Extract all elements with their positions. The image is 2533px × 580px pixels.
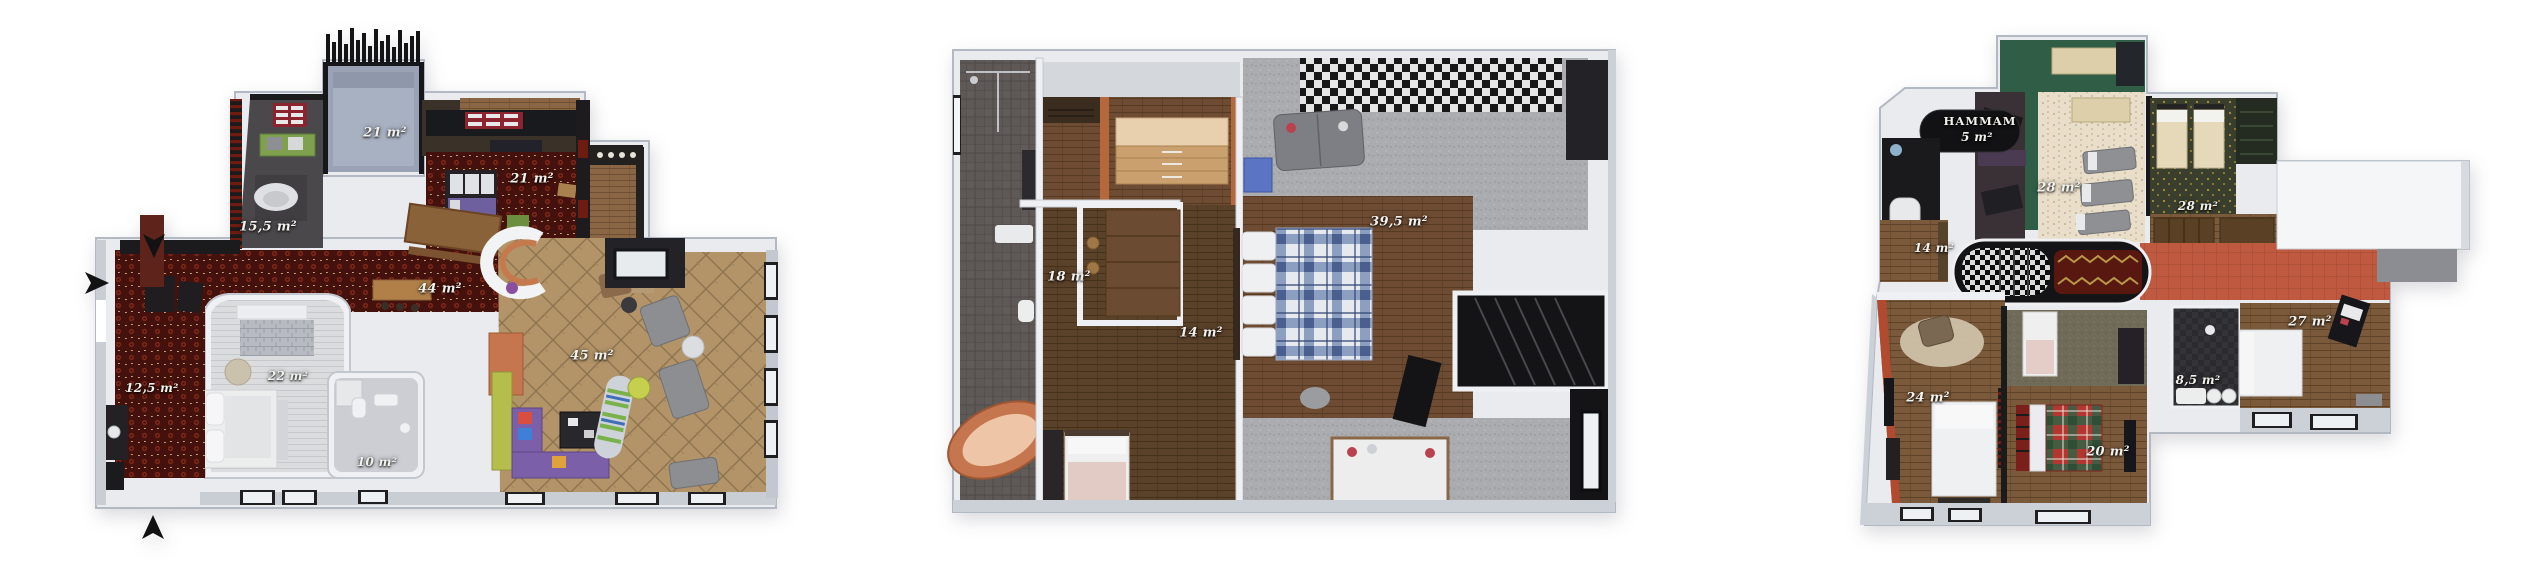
floor-plans-strip: 21 m² 21 m² 15,5 m² 44 m² 45 m² 22 m² 12…	[0, 0, 2533, 580]
right-floor-plan-render	[1820, 0, 2533, 580]
middle-floor-plan: 39,5 m² 18 m² 14 m²	[930, 0, 1650, 580]
room-bedroom-20	[2001, 306, 2147, 503]
room-green-top	[2000, 40, 2145, 92]
room-closet	[1043, 97, 1100, 200]
room-corridor-14	[1020, 200, 1236, 503]
right-floor-plan: HAMMAM 5 m² 28 m² 28 m² 14 m² 27 m² 8,5 …	[1820, 0, 2533, 580]
room-corridor-14	[1880, 220, 1948, 282]
wall	[1036, 58, 1043, 502]
room-master-24	[1877, 292, 2014, 508]
room-bedroom-27	[2240, 294, 2390, 432]
middle-floor-plan-render	[930, 0, 1650, 580]
room-living-45	[487, 233, 772, 497]
corridor-red-tiles	[2140, 243, 2390, 300]
entrance-arrow-up-icon	[142, 515, 164, 539]
room-bathroom-10	[328, 372, 424, 478]
left-floor-plan: 21 m² 21 m² 15,5 m² 44 m² 45 m² 22 m² 12…	[60, 0, 780, 580]
left-floor-plan-render	[60, 0, 780, 580]
room-terrace-21	[323, 62, 424, 174]
room-dressing	[1100, 97, 1240, 205]
room-massage-28	[2024, 88, 2145, 242]
room-bath-8-5	[2172, 307, 2240, 407]
exterior-wall	[953, 500, 1615, 512]
